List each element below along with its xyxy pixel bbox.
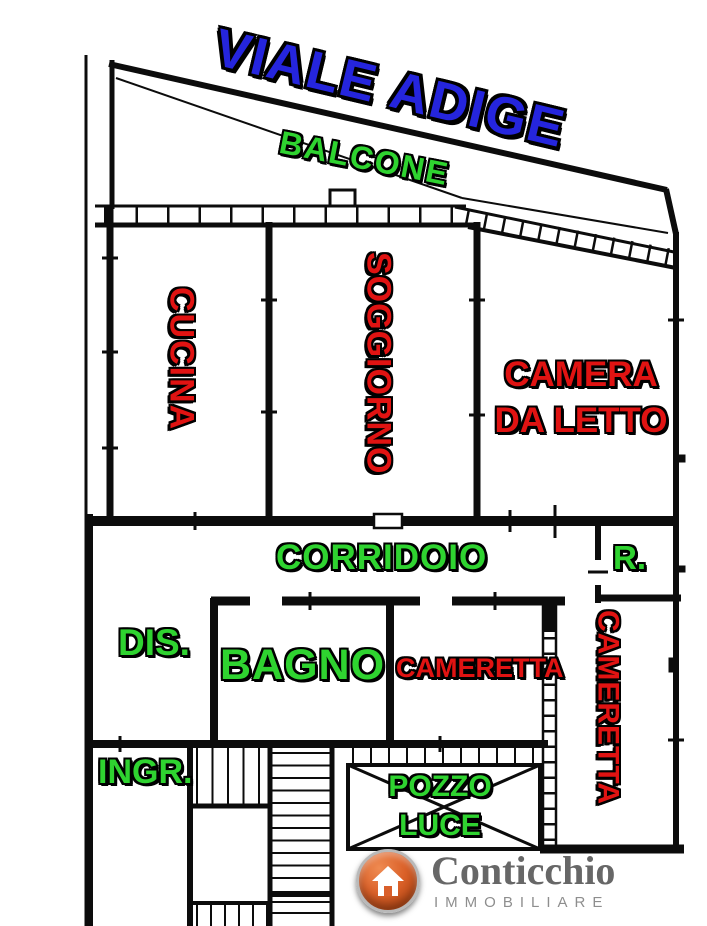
room-label-corridoio: CORRIDOIO <box>276 540 487 577</box>
house-icon <box>370 864 406 898</box>
room-label-cucina: CUCINA <box>163 287 199 431</box>
room-label-bagno: BAGNO <box>220 643 385 688</box>
logo-house-badge <box>356 849 420 913</box>
room-label-cameretta-piccola: CAMERETTA <box>396 654 563 682</box>
logo-text-block: Conticchio IMMOBILIARE <box>431 851 615 911</box>
room-label-disimpegno: DIS. <box>118 624 190 663</box>
room-label-cameretta-grande: CAMERETTA <box>592 610 624 805</box>
room-label-camera-da-letto: CAMERA DA LETTO <box>478 352 684 443</box>
room-label-ingresso: INGR. <box>98 755 192 791</box>
room-label-pozzo-luce: POZZO LUCE <box>371 767 509 845</box>
logo-tagline: IMMOBILIARE <box>434 894 615 911</box>
floor-plan-page: VIALE ADIGE BALCONE CUCINA SOGGIORNO CAM… <box>0 0 707 926</box>
logo-name: Conticchio <box>431 851 615 891</box>
room-label-ripostiglio: R. <box>613 541 646 576</box>
room-label-soggiorno: SOGGIORNO <box>360 252 396 474</box>
agency-logo: Conticchio IMMOBILIARE <box>356 849 615 913</box>
